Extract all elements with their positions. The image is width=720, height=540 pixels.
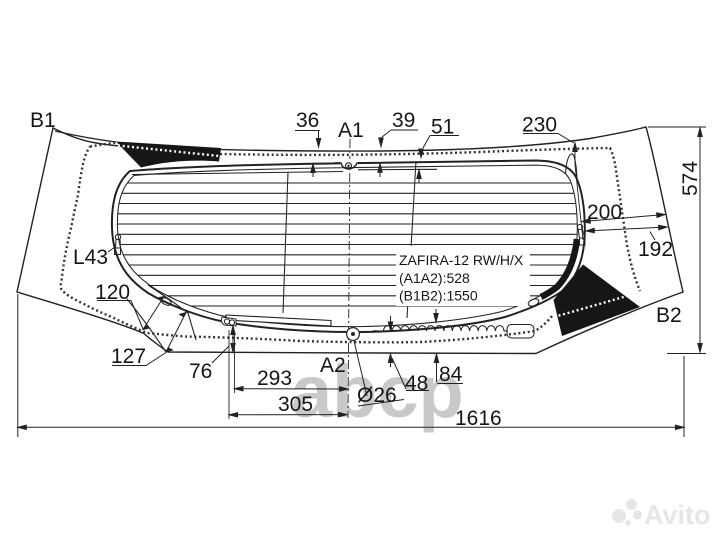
- svg-text:84: 84: [439, 363, 463, 386]
- svg-text:ZAFIRA-12 RW/H/X: ZAFIRA-12 RW/H/X: [399, 252, 524, 268]
- svg-text:Avito: Avito: [644, 500, 711, 530]
- svg-text:B1: B1: [30, 109, 56, 132]
- svg-text:127: 127: [111, 345, 146, 368]
- svg-text:L43: L43: [73, 246, 108, 269]
- svg-text:293: 293: [257, 367, 292, 390]
- svg-text:B2: B2: [656, 304, 682, 327]
- svg-text:48: 48: [405, 372, 428, 395]
- svg-text:Ø26: Ø26: [357, 384, 397, 407]
- svg-text:51: 51: [431, 116, 454, 139]
- svg-text:574: 574: [679, 161, 702, 196]
- svg-text:192: 192: [638, 238, 673, 261]
- svg-text:305: 305: [278, 393, 313, 416]
- svg-text:76: 76: [189, 360, 212, 383]
- svg-text:(B1B2):1550: (B1B2):1550: [399, 288, 478, 304]
- svg-text:A1: A1: [338, 119, 364, 142]
- svg-text:120: 120: [95, 281, 130, 304]
- svg-text:(A1A2):528: (A1A2):528: [399, 270, 470, 286]
- svg-text:36: 36: [296, 109, 319, 132]
- svg-text:39: 39: [392, 109, 415, 132]
- svg-text:230: 230: [522, 114, 557, 137]
- svg-text:1616: 1616: [455, 407, 502, 430]
- svg-text:A2: A2: [320, 354, 346, 377]
- svg-text:200: 200: [587, 201, 622, 224]
